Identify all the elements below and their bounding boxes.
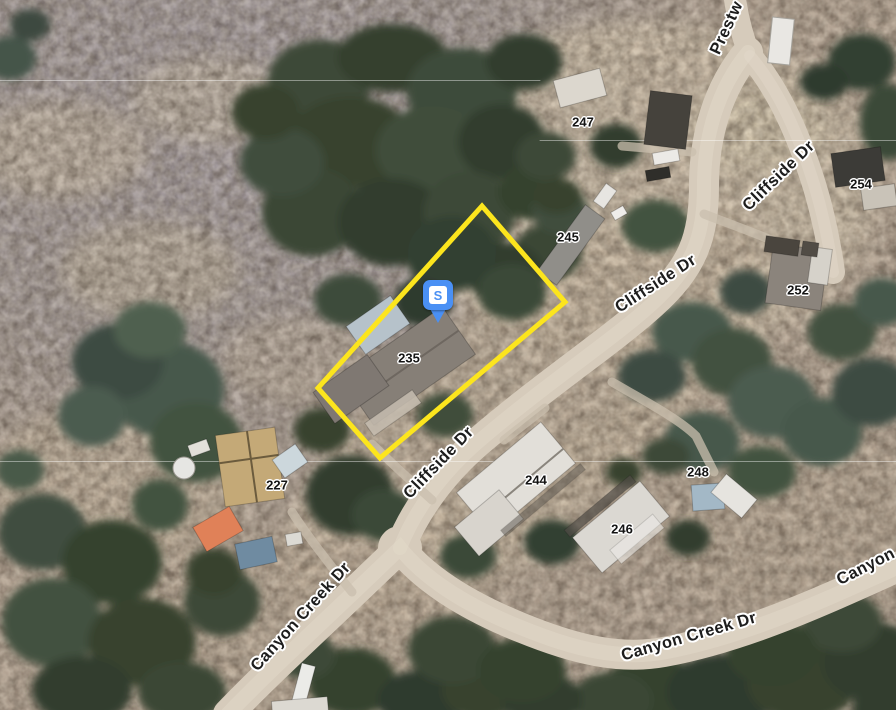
rv-trailer [768,17,795,65]
marker-letter-icon: S [429,286,447,304]
map-canvas[interactable]: Prestw Cliffside Dr Cliffside Dr Cliffsi… [0,0,896,710]
place-marker[interactable]: S [423,280,453,323]
satellite-imagery [0,0,896,710]
marker-pin-head[interactable]: S [423,280,453,310]
